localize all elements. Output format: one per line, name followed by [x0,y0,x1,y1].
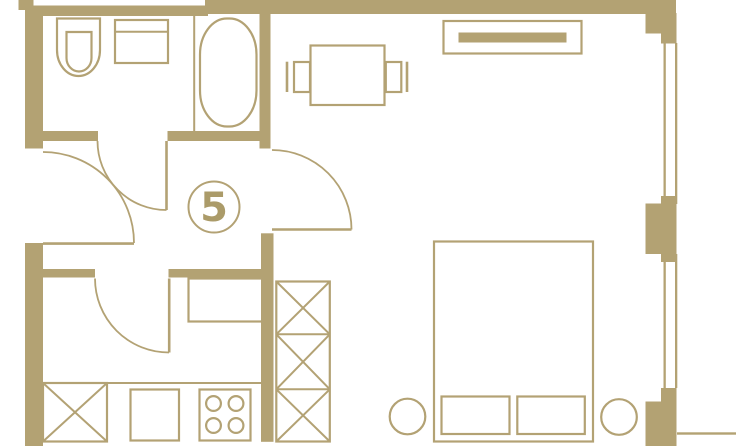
toilet-bowl [67,32,92,72]
bed-area [390,242,637,442]
bed [434,242,593,442]
toilet-outer [57,19,100,76]
wall-bathtub-right [260,13,271,149]
window-upper-outer-line [675,43,677,204]
dining-table [311,46,385,106]
floor-plan-drawing: 5 [0,0,736,446]
wall-window-pier [646,204,677,255]
wall-left-upper [25,6,43,149]
window-lower-inner-line [664,254,666,388]
living-room-door-arc [272,150,352,230]
burner-bottom-left [206,418,221,433]
kitchen-door-arc [95,279,169,353]
wall-bathroom-bottom-left [43,131,98,141]
floor-plan: 5 [0,0,736,446]
nightstand-left [390,399,426,435]
washing-machine [43,383,107,442]
burner-bottom-right [229,418,244,433]
hallway: 5 [189,182,240,233]
wall-top-right-step [661,13,677,44]
wall-bathroom-bottom-right [168,131,271,141]
window-lower-outer-line [675,254,677,388]
dresser [444,21,582,54]
living-room [276,21,637,442]
wardrobe-shelving [276,282,330,442]
chair-right-seat [386,62,402,92]
walls [19,0,677,446]
counter-fridge [189,279,264,322]
pillow-right [517,397,585,435]
wall-hall-right [261,233,274,441]
burner-top-right [229,396,244,411]
kitchen [43,279,263,442]
wall-bottom-right-outer [661,388,677,446]
sink-unit [115,20,168,63]
bathtub [200,19,257,127]
nightstand-right [601,399,637,435]
stove [200,390,251,441]
unit-number: 5 [200,185,228,231]
wall-bathroom-top [25,6,208,17]
window-upper-inner-line [664,43,666,204]
wall-kitchen-top-right [169,269,262,278]
bathroom-door-arc [98,141,167,210]
exterior-wall-cutoff-line [677,432,736,434]
entrance-door-arc [43,152,134,243]
bathroom [57,16,257,132]
burner-top-left [206,396,221,411]
wall-top-main [205,0,646,14]
dining-set [287,46,407,106]
base-cabinet [131,390,180,441]
wall-kitchen-top-left [43,269,95,278]
dresser-front-bar [459,33,567,43]
wall-bottom-right-inner [646,402,662,446]
wall-left-lower [25,243,43,446]
stove-box [200,390,251,441]
pillow-left [442,397,510,435]
chair-left-seat [294,62,310,92]
